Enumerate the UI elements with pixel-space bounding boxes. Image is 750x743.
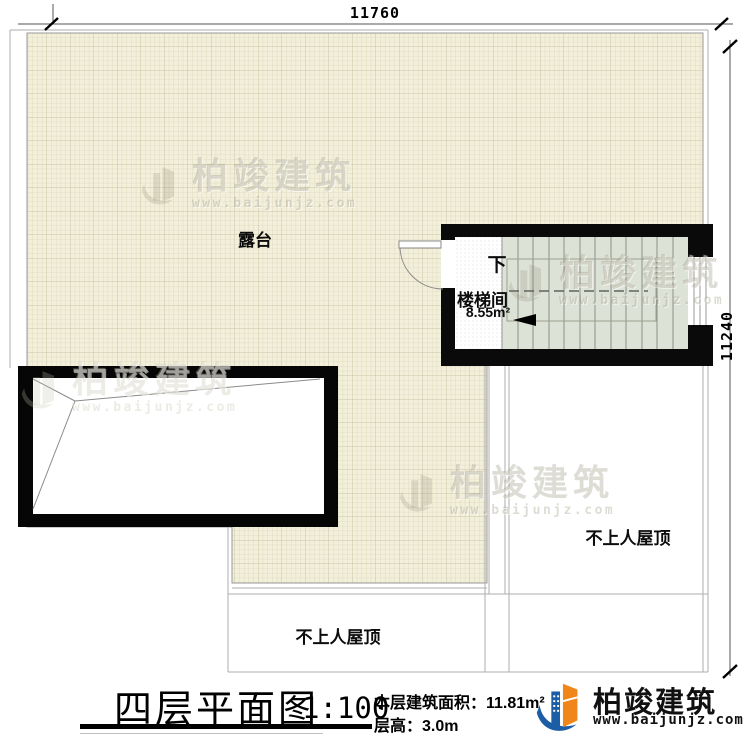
stairwell [399, 224, 713, 366]
floor-area-text: 本层建筑面积：11.81m² [374, 689, 545, 713]
roof-label-right: 不上人屋顶 [548, 524, 708, 549]
dimension-top-value: 11760 [340, 4, 410, 22]
title-underline-thin [80, 733, 323, 734]
brand-website: www.baijunjz.com [593, 712, 744, 728]
floor-plan-page: 柏竣建筑 www.baijunjz.com 柏竣建筑 www.baijunjz.… [0, 0, 750, 743]
dimension-right-value: 11240 [718, 301, 736, 371]
stair-down-label: 下 [480, 250, 514, 277]
stairwell-window [688, 257, 713, 325]
brand-logo-icon [532, 676, 590, 734]
roof-label-bottom: 不上人屋顶 [258, 623, 418, 648]
stairwell-area-label: 8.55m² [456, 304, 520, 320]
floor-height-text: 层高：3.0m [374, 712, 458, 736]
void-opening [18, 366, 338, 527]
title-underline [80, 724, 372, 729]
terrace-label: 露台 [215, 226, 295, 251]
